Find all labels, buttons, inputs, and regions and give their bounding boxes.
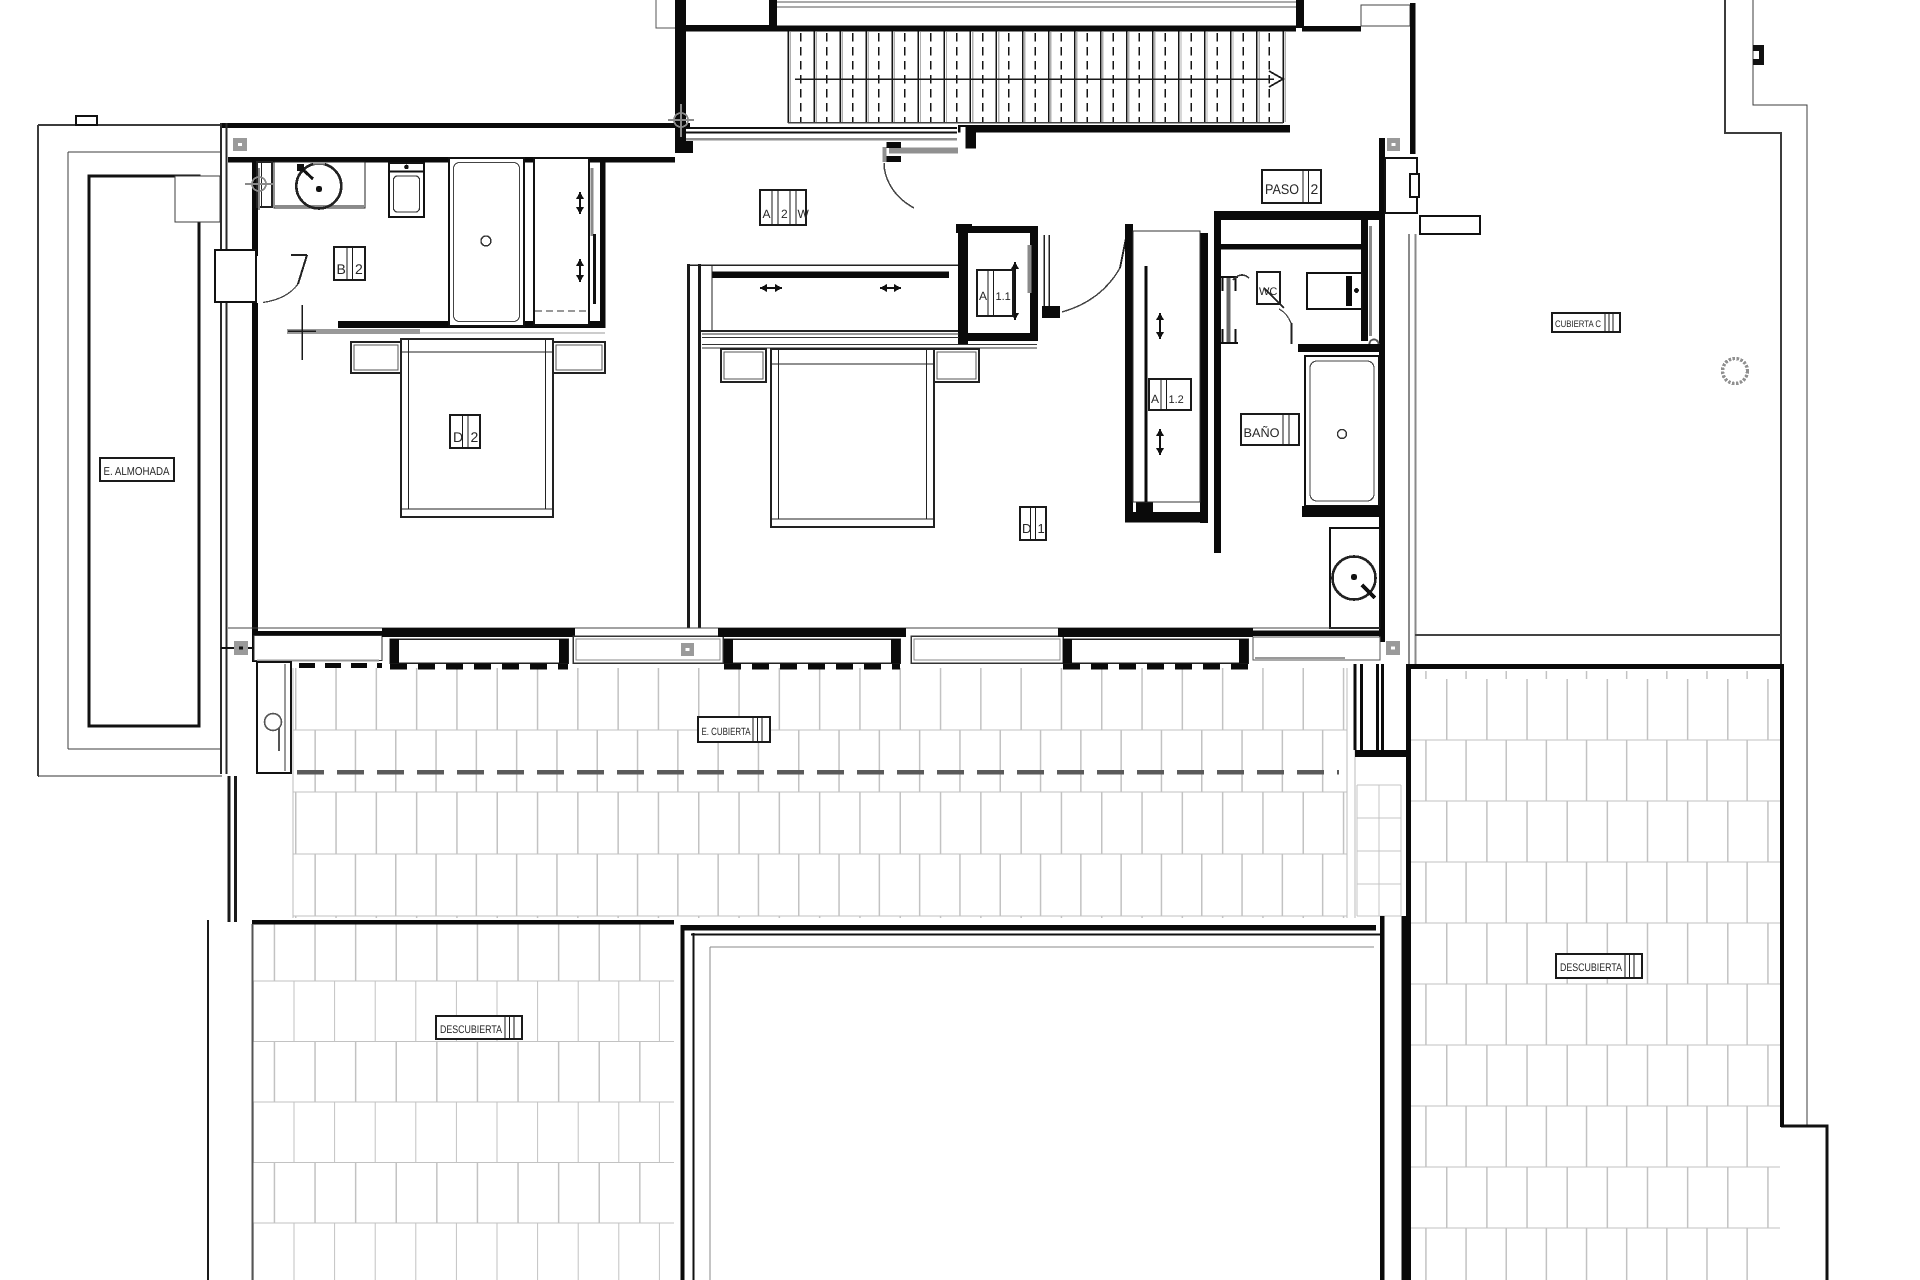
svg-text:BAÑO: BAÑO — [1244, 426, 1280, 440]
svg-text:2: 2 — [355, 261, 363, 277]
svg-text:D: D — [453, 429, 463, 445]
svg-text:1: 1 — [1038, 521, 1045, 536]
svg-text:E. CUBIERTA: E. CUBIERTA — [702, 726, 751, 738]
svg-text:D: D — [1022, 521, 1031, 536]
svg-text:PASO: PASO — [1265, 181, 1299, 197]
svg-text:1.2: 1.2 — [1169, 394, 1184, 406]
svg-text:DESCUBIERTA: DESCUBIERTA — [440, 1024, 503, 1036]
svg-text:2: 2 — [471, 429, 479, 445]
svg-text:CUBIERTA C: CUBIERTA C — [1555, 319, 1601, 330]
svg-text:A: A — [1151, 392, 1159, 406]
svg-text:1.1: 1.1 — [996, 291, 1011, 303]
svg-text:A: A — [763, 207, 771, 221]
svg-text:W: W — [798, 207, 810, 221]
svg-text:A: A — [979, 289, 987, 303]
svg-text:E. ALMOHADA: E. ALMOHADA — [104, 466, 170, 478]
svg-text:B: B — [337, 261, 346, 277]
svg-text:DESCUBIERTA: DESCUBIERTA — [1560, 962, 1623, 974]
svg-text:2: 2 — [1311, 181, 1319, 197]
svg-text:2: 2 — [781, 207, 788, 221]
